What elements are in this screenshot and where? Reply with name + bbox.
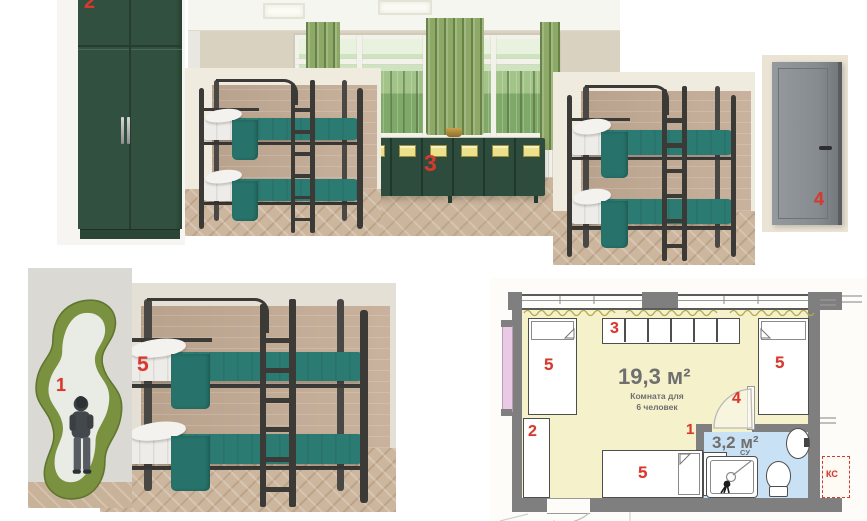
wardrobe-photo: 2 [57, 0, 185, 245]
plan-room-area-label: 19,3 м² [618, 366, 691, 388]
plan-room-caption-2: 6 человек [616, 403, 698, 412]
mirror-marker: 1 [56, 376, 66, 394]
plan-shaft-label: КС [826, 470, 838, 479]
floor-plan: 19,3 м² Комната для 6 человек 3,2 м² СУ … [490, 278, 867, 521]
plan-marker-bed-right: 5 [775, 354, 784, 371]
door-handle [819, 146, 832, 150]
door-photo: 4 [762, 55, 848, 232]
door [772, 62, 842, 225]
plan-marker-wardrobe: 2 [528, 424, 537, 440]
door-marker: 4 [814, 190, 824, 208]
plan-marker-mirror: 1 [686, 422, 694, 437]
bunk-bed-photo-bottom: 5 [100, 283, 396, 512]
mirror-photo: 1 [28, 268, 132, 508]
curtain-center [426, 18, 484, 135]
bed-marker: 5 [137, 354, 149, 375]
wardrobe-marker: 2 [84, 0, 95, 12]
bunk-bed-photo-top-left [185, 68, 381, 236]
lockers-marker: 3 [424, 152, 437, 175]
plan-marker-bed-bottom: 5 [638, 464, 647, 481]
wardrobe-handle [127, 117, 130, 144]
mirror [30, 296, 132, 508]
ceiling-light [263, 3, 305, 19]
locker-name-tag [461, 145, 478, 157]
locker-name-tag [399, 145, 416, 157]
plan-marker-bed-left: 5 [544, 356, 553, 373]
planter [446, 128, 462, 137]
plan-bath-area-label: 3,2 м² [712, 434, 759, 451]
moodboard: 3 2 [0, 0, 867, 521]
plan-marker-lockers: 3 [610, 321, 619, 337]
plan-room-caption-1: Комната для [616, 392, 698, 401]
plan-bath-su-label: СУ [740, 449, 750, 457]
wardrobe-handle [121, 117, 124, 144]
plan-marker-door: 4 [732, 391, 741, 407]
locker-name-tag [523, 145, 540, 157]
locker-name-tag [492, 145, 509, 157]
locker-sideboard [360, 138, 545, 196]
ceiling-light [378, 0, 432, 15]
bunk-bed-photo-top-right [553, 72, 755, 265]
